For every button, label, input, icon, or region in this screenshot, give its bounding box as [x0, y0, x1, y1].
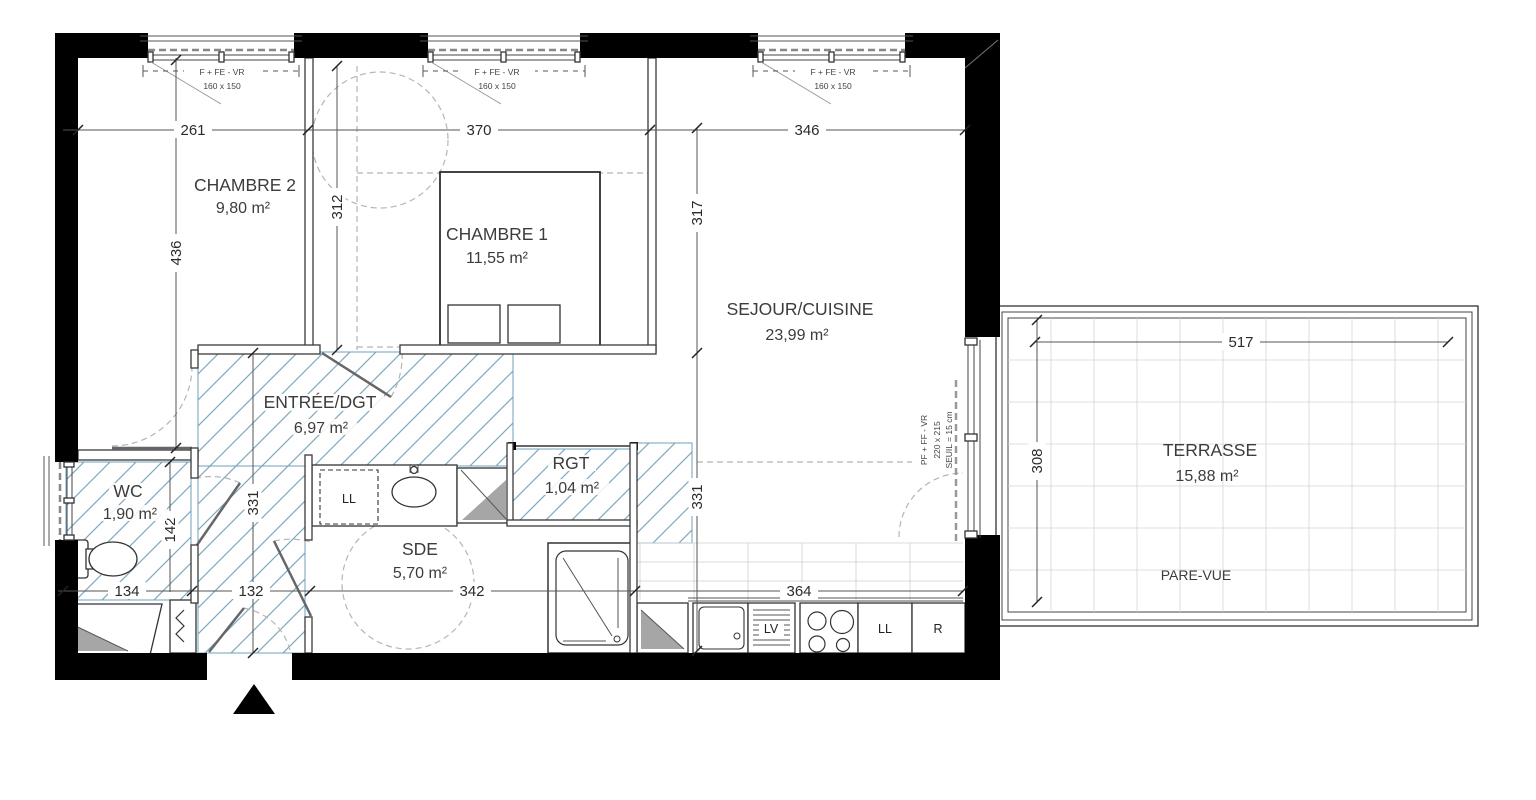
- cooktop: [800, 603, 858, 653]
- kitchen-sink-unit: [693, 603, 748, 653]
- terrace-door-seuil-label: SEUIL = 15 cm: [944, 411, 954, 468]
- dim-chambre2-height: 436: [168, 240, 185, 265]
- electrical-cabinet: [170, 600, 196, 653]
- sde-area: 5,70 m²: [393, 565, 448, 582]
- wall-sde-west-a: [305, 455, 312, 540]
- window1-size-label: 160 x 150: [203, 81, 241, 91]
- fridge-label: R: [933, 622, 942, 636]
- floor-plan-page: LV LL R: [0, 0, 1536, 800]
- wall-rgt-west: [507, 443, 513, 523]
- sde-name: SDE: [402, 539, 438, 559]
- entree-name: ENTRÉE/DGT: [264, 392, 377, 412]
- sde-washer-label: LL: [342, 492, 356, 506]
- wall-wc-east-b: [191, 448, 198, 478]
- pillow: [448, 305, 500, 343]
- pillow: [508, 305, 560, 343]
- floor-plan-drawing: LV LL R: [0, 0, 1536, 800]
- dim-terrasse-width: 517: [1228, 334, 1253, 351]
- sejour-area: 23,99 m²: [765, 327, 829, 344]
- window2-type-label: F + FE - VR: [474, 67, 519, 77]
- dim-entry-width: 132: [238, 583, 263, 600]
- terrasse-tile-grid: [1008, 318, 1466, 612]
- chambre2-name: CHAMBRE 2: [194, 175, 296, 195]
- wall-sde-east: [630, 443, 637, 653]
- terrace-door: [956, 338, 980, 543]
- dim-kitchen-width: 364: [786, 583, 811, 600]
- terrace-door-size-label: 220 x 215: [932, 421, 942, 459]
- terrasse-name: TERRASSE: [1163, 440, 1257, 460]
- pare-vue-label: PARE-VUE: [1161, 567, 1232, 583]
- wall-chambre2-wc: [78, 450, 198, 460]
- washing-machine-kitchen: LL: [858, 603, 912, 653]
- chambre2-area: 9,80 m²: [216, 200, 271, 217]
- sde-vanity: [312, 464, 457, 526]
- tall-unit-sde: [457, 468, 510, 523]
- chambre2-door-arc: [112, 368, 192, 446]
- dim-sejour-width: 346: [794, 122, 819, 139]
- dishwasher: LV: [748, 603, 795, 653]
- dim-sejour-height: 317: [689, 200, 706, 225]
- wall-hall-north-east: [400, 345, 656, 354]
- wall-wc-east-a: [191, 350, 198, 368]
- washer-label: LL: [878, 622, 892, 636]
- kitchen-counter: LV LL R: [688, 598, 965, 653]
- wall-wc-east-c: [191, 545, 198, 603]
- washbasin: [392, 477, 436, 507]
- entree-area: 6,97 m²: [294, 420, 349, 437]
- rgt-name: RGT: [553, 453, 590, 473]
- dim-chambre1-width: 370: [466, 122, 491, 139]
- dim-hall-height-right: 331: [689, 484, 706, 509]
- terrace-door-arc: [899, 473, 963, 537]
- dim-sde-width: 342: [459, 583, 484, 600]
- dishwasher-label: LV: [764, 622, 779, 636]
- dim-hall-height-left: 331: [245, 490, 262, 515]
- wc-area: 1,90 m²: [103, 506, 158, 523]
- entrance-arrow-icon: [233, 684, 275, 714]
- sejour-name: SEJOUR/CUISINE: [727, 299, 874, 319]
- faucet-icon: [411, 467, 418, 474]
- turning-circle-bedrooms: [312, 72, 448, 208]
- toilet-bowl: [89, 542, 137, 576]
- shower: [548, 543, 635, 653]
- wall-rgt-south: [507, 520, 637, 526]
- window2-size-label: 160 x 150: [478, 81, 516, 91]
- wall-sde-west-b: [305, 617, 312, 653]
- window3-type-label: F + FE - VR: [810, 67, 855, 77]
- chambre1-name: CHAMBRE 1: [446, 224, 548, 244]
- rgt-area: 1,04 m²: [545, 480, 600, 497]
- terrasse-area: 15,88 m²: [1175, 468, 1239, 485]
- wall-chambre2-chambre1: [305, 58, 313, 350]
- dim-chambre1-height: 312: [329, 194, 346, 219]
- wall-chambre1-sejour: [648, 58, 656, 352]
- hall-strip-floor: [637, 443, 692, 543]
- window1-type-label: F + FE - VR: [199, 67, 244, 77]
- terrasse: [996, 306, 1478, 626]
- fridge: R: [912, 603, 965, 653]
- dim-chambre2-width: 261: [180, 122, 205, 139]
- chambre1-area: 11,55 m²: [466, 250, 529, 267]
- wall-hall-north-west: [198, 345, 320, 354]
- wc-name: WC: [113, 481, 142, 501]
- tall-unit-kitchen: [637, 603, 688, 653]
- dim-terrasse-height: 308: [1029, 448, 1046, 473]
- dim-wc-width: 134: [114, 583, 139, 600]
- dim-wc-height: 142: [162, 517, 179, 542]
- terrace-door-type-label: PF + FF - VR: [919, 415, 929, 465]
- window3-size-label: 160 x 150: [814, 81, 852, 91]
